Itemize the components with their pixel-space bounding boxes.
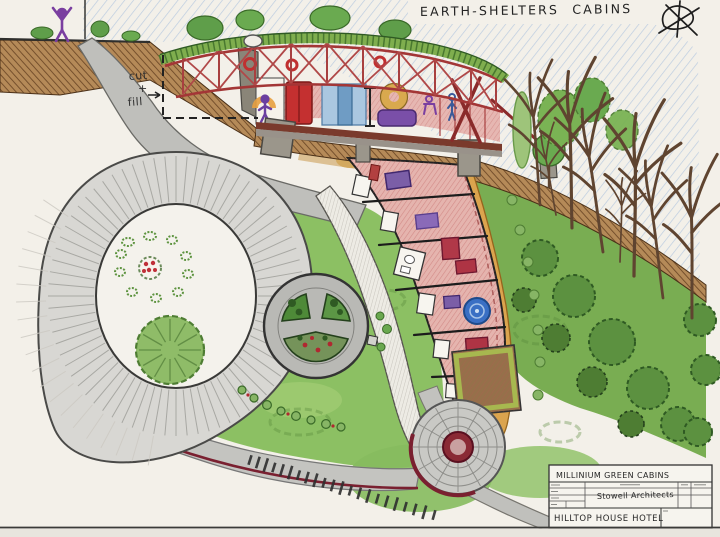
bed-purple	[385, 170, 411, 189]
cut-label: cut	[128, 69, 148, 83]
roof-dome	[244, 35, 262, 47]
blue-door	[338, 86, 352, 125]
drawing-title: EARTH-SHELTERS CABINS	[420, 1, 633, 19]
plus-label: +	[138, 82, 148, 95]
rug-purple	[415, 213, 438, 229]
person-figure-hilltop	[53, 8, 71, 41]
project-name: MILLINIUM GREEN CABINS	[556, 471, 669, 480]
bed-red	[441, 237, 459, 259]
fill-label: fill	[127, 95, 143, 109]
cut-fill-arrow	[148, 92, 160, 98]
courtyard-bench	[367, 335, 378, 346]
title-block: MILLINIUM GREEN CABINS Stowell Architect…	[549, 465, 712, 528]
purple-sofa	[378, 110, 416, 126]
sheet-margin	[0, 529, 720, 537]
client-name: HILLTOP HOUSE HOTEL	[554, 514, 663, 524]
drawing-canvas: cut + fill EARTH-SHELTERS CABINS MILLINI…	[0, 0, 720, 537]
drawing-sheet: cut + fill EARTH-SHELTERS CABINS MILLINI…	[0, 0, 720, 537]
plaza	[411, 400, 505, 495]
